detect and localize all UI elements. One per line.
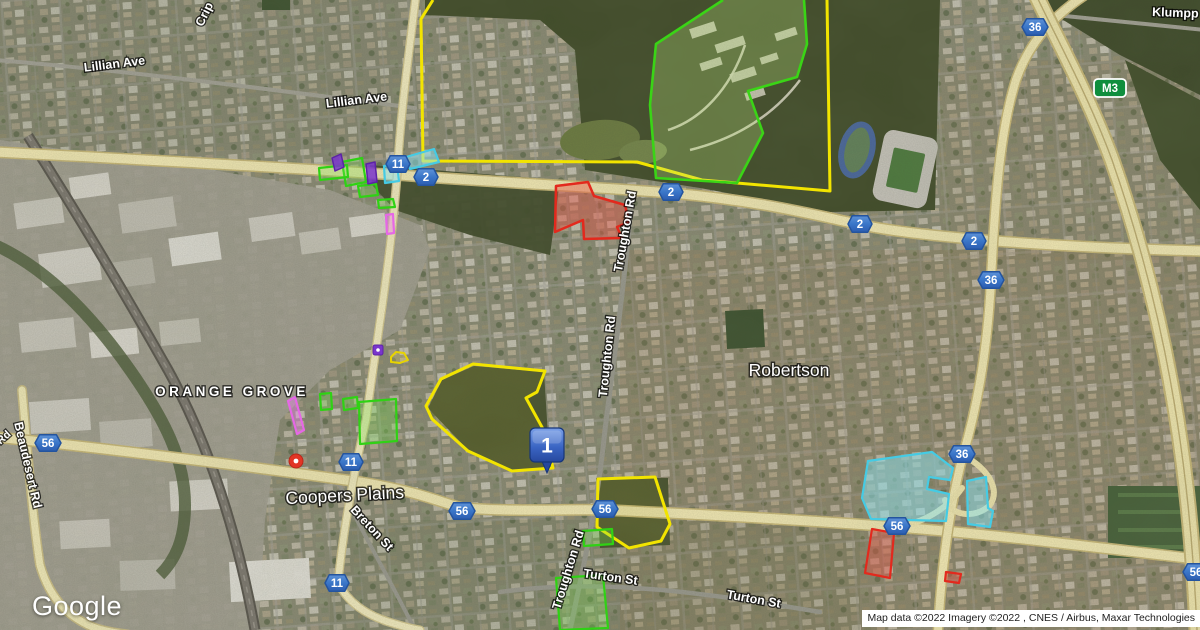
route-shield-11: 11 <box>339 454 363 471</box>
route-shield-m3: M3 <box>1094 79 1126 97</box>
locality-robertson: Robertson <box>749 360 830 380</box>
route-shield-56: 56 <box>1183 564 1200 581</box>
route-shield-2: 2 <box>414 169 438 186</box>
route-shield-36: 36 <box>949 446 975 463</box>
marker-label: 1 <box>541 435 553 458</box>
route-shield-11: 11 <box>386 156 410 173</box>
route-shield-56: 56 <box>35 435 61 452</box>
route-shield-2: 2 <box>962 233 986 250</box>
overlay-yellow-tiny <box>391 352 408 363</box>
svg-text:56: 56 <box>456 506 469 518</box>
svg-text:56: 56 <box>599 504 612 516</box>
svg-text:11: 11 <box>392 159 405 171</box>
svg-text:2: 2 <box>971 236 977 248</box>
google-logo[interactable]: Google <box>32 591 122 622</box>
svg-text:2: 2 <box>423 172 429 184</box>
satellite-map[interactable]: Lillian Ave Lillian Ave Crip Klumpp Rd T… <box>0 0 1200 630</box>
route-shield-11: 11 <box>325 575 349 592</box>
route-shield-56: 56 <box>449 503 475 520</box>
route-shield-56: 56 <box>592 501 618 518</box>
svg-text:56: 56 <box>1190 567 1200 579</box>
svg-text:36: 36 <box>956 449 969 461</box>
svg-text:2: 2 <box>668 187 674 199</box>
route-shield-36: 36 <box>1022 19 1048 36</box>
map-viewport[interactable]: Lillian Ave Lillian Ave Crip Klumpp Rd T… <box>0 0 1200 630</box>
svg-text:36: 36 <box>1029 22 1042 34</box>
svg-text:M3: M3 <box>1102 83 1118 95</box>
svg-text:11: 11 <box>331 578 344 590</box>
route-shield-2: 2 <box>848 216 872 233</box>
svg-text:56: 56 <box>42 438 55 450</box>
route-shield-36: 36 <box>978 272 1004 289</box>
route-shield-2: 2 <box>659 184 683 201</box>
svg-text:56: 56 <box>891 521 904 533</box>
svg-text:11: 11 <box>345 457 358 469</box>
poi-icon-purple[interactable] <box>373 345 383 355</box>
route-shield-56: 56 <box>884 518 910 535</box>
road-label-klumpp: Klumpp Rd <box>1152 5 1200 21</box>
svg-text:36: 36 <box>985 275 998 287</box>
map-attribution: Map data ©2022 Imagery ©2022 , CNES / Ai… <box>862 610 1200 627</box>
poi-icon-red[interactable] <box>289 454 303 468</box>
locality-orange-grove: ORANGE GROVE <box>155 384 309 399</box>
svg-text:2: 2 <box>857 219 863 231</box>
